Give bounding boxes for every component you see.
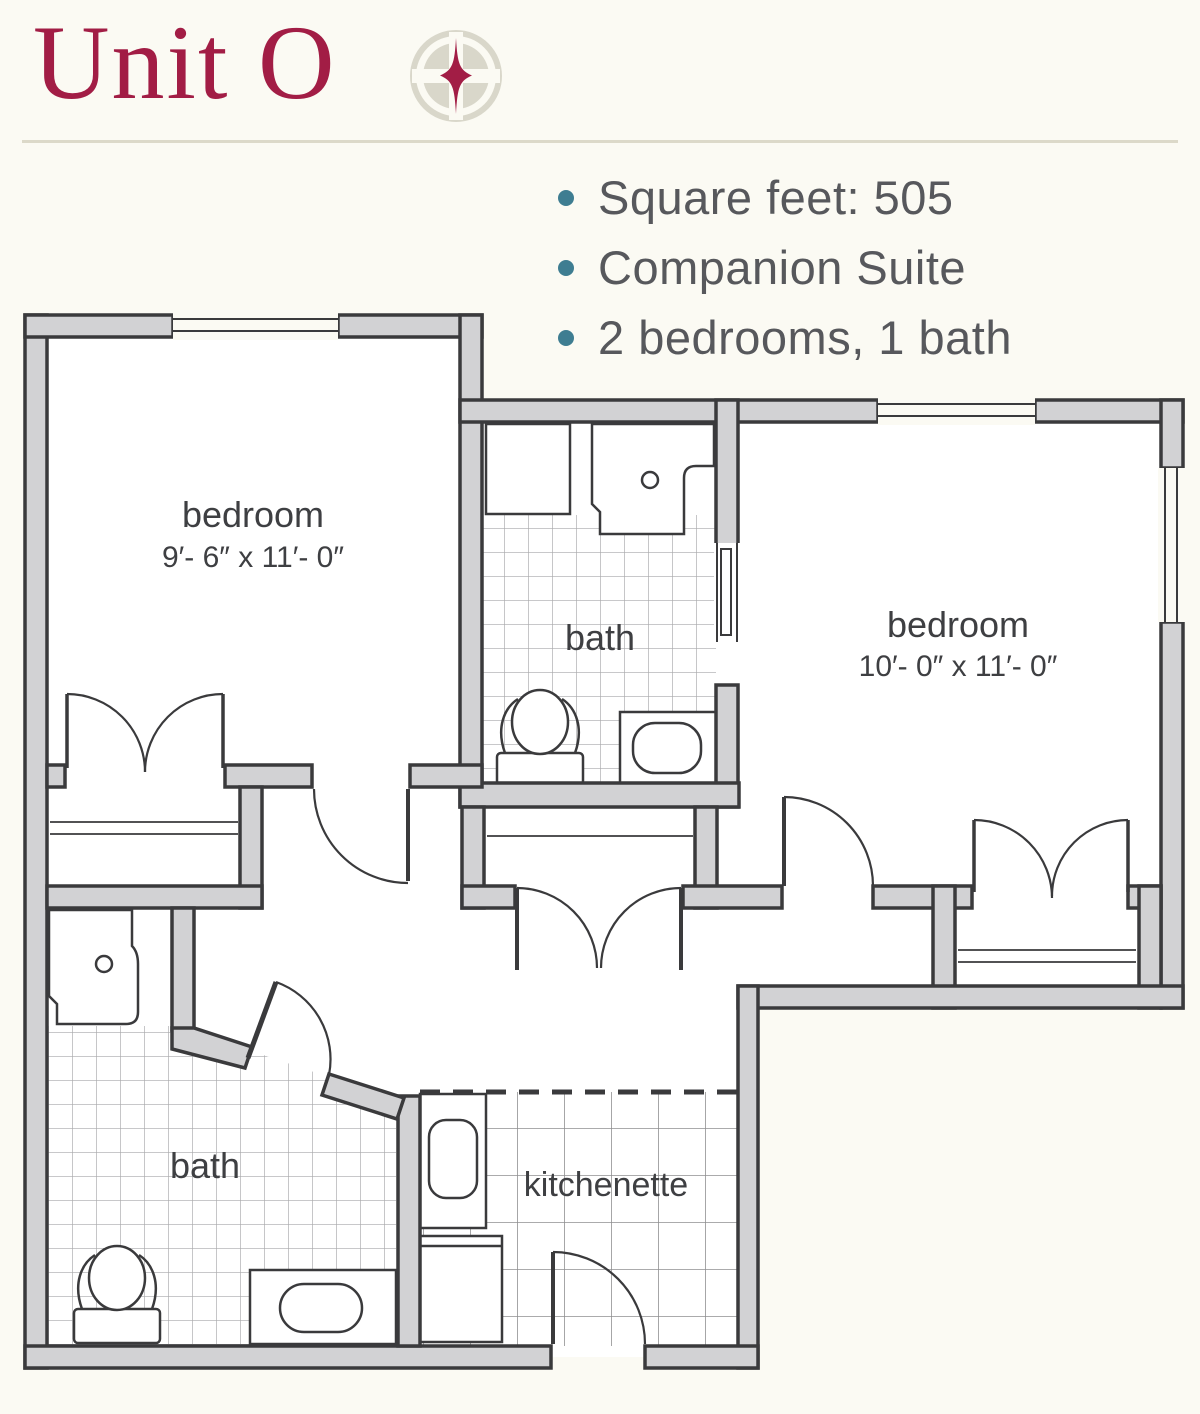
refrigerator [420, 1236, 502, 1342]
pocket-door-bath1 [714, 543, 740, 642]
room-label-bath1: bath [565, 617, 635, 658]
shower-bath2 [49, 910, 138, 1024]
room-dims-bedroom2: 10′- 0″ x 11′- 0″ [859, 650, 1058, 683]
window-bedroom2-top [878, 397, 1035, 425]
room-label-kitchenette: kitchenette [524, 1166, 688, 1204]
shower-drain-icon [96, 956, 112, 972]
kitchenette-sink-counter [420, 1094, 486, 1228]
room-label-bedroom2: bedroom [887, 604, 1029, 645]
room-label-bath2: bath [170, 1145, 240, 1186]
room-label-bedroom1: bedroom [182, 494, 324, 535]
room-dims-bedroom1: 9′- 6″ x 11′- 0″ [162, 541, 344, 574]
window-bedroom2-right [1158, 468, 1186, 622]
bath1-linen-closet [486, 424, 570, 514]
shower-drain-icon [642, 472, 658, 488]
floor-plan: bedroom 9′- 6″ x 11′- 0″ bedroom 10′- 0″… [0, 0, 1200, 1414]
vanity-sink-bath1 [620, 712, 717, 785]
window-bedroom1 [173, 312, 338, 340]
vanity-sink-bath2 [250, 1270, 396, 1344]
